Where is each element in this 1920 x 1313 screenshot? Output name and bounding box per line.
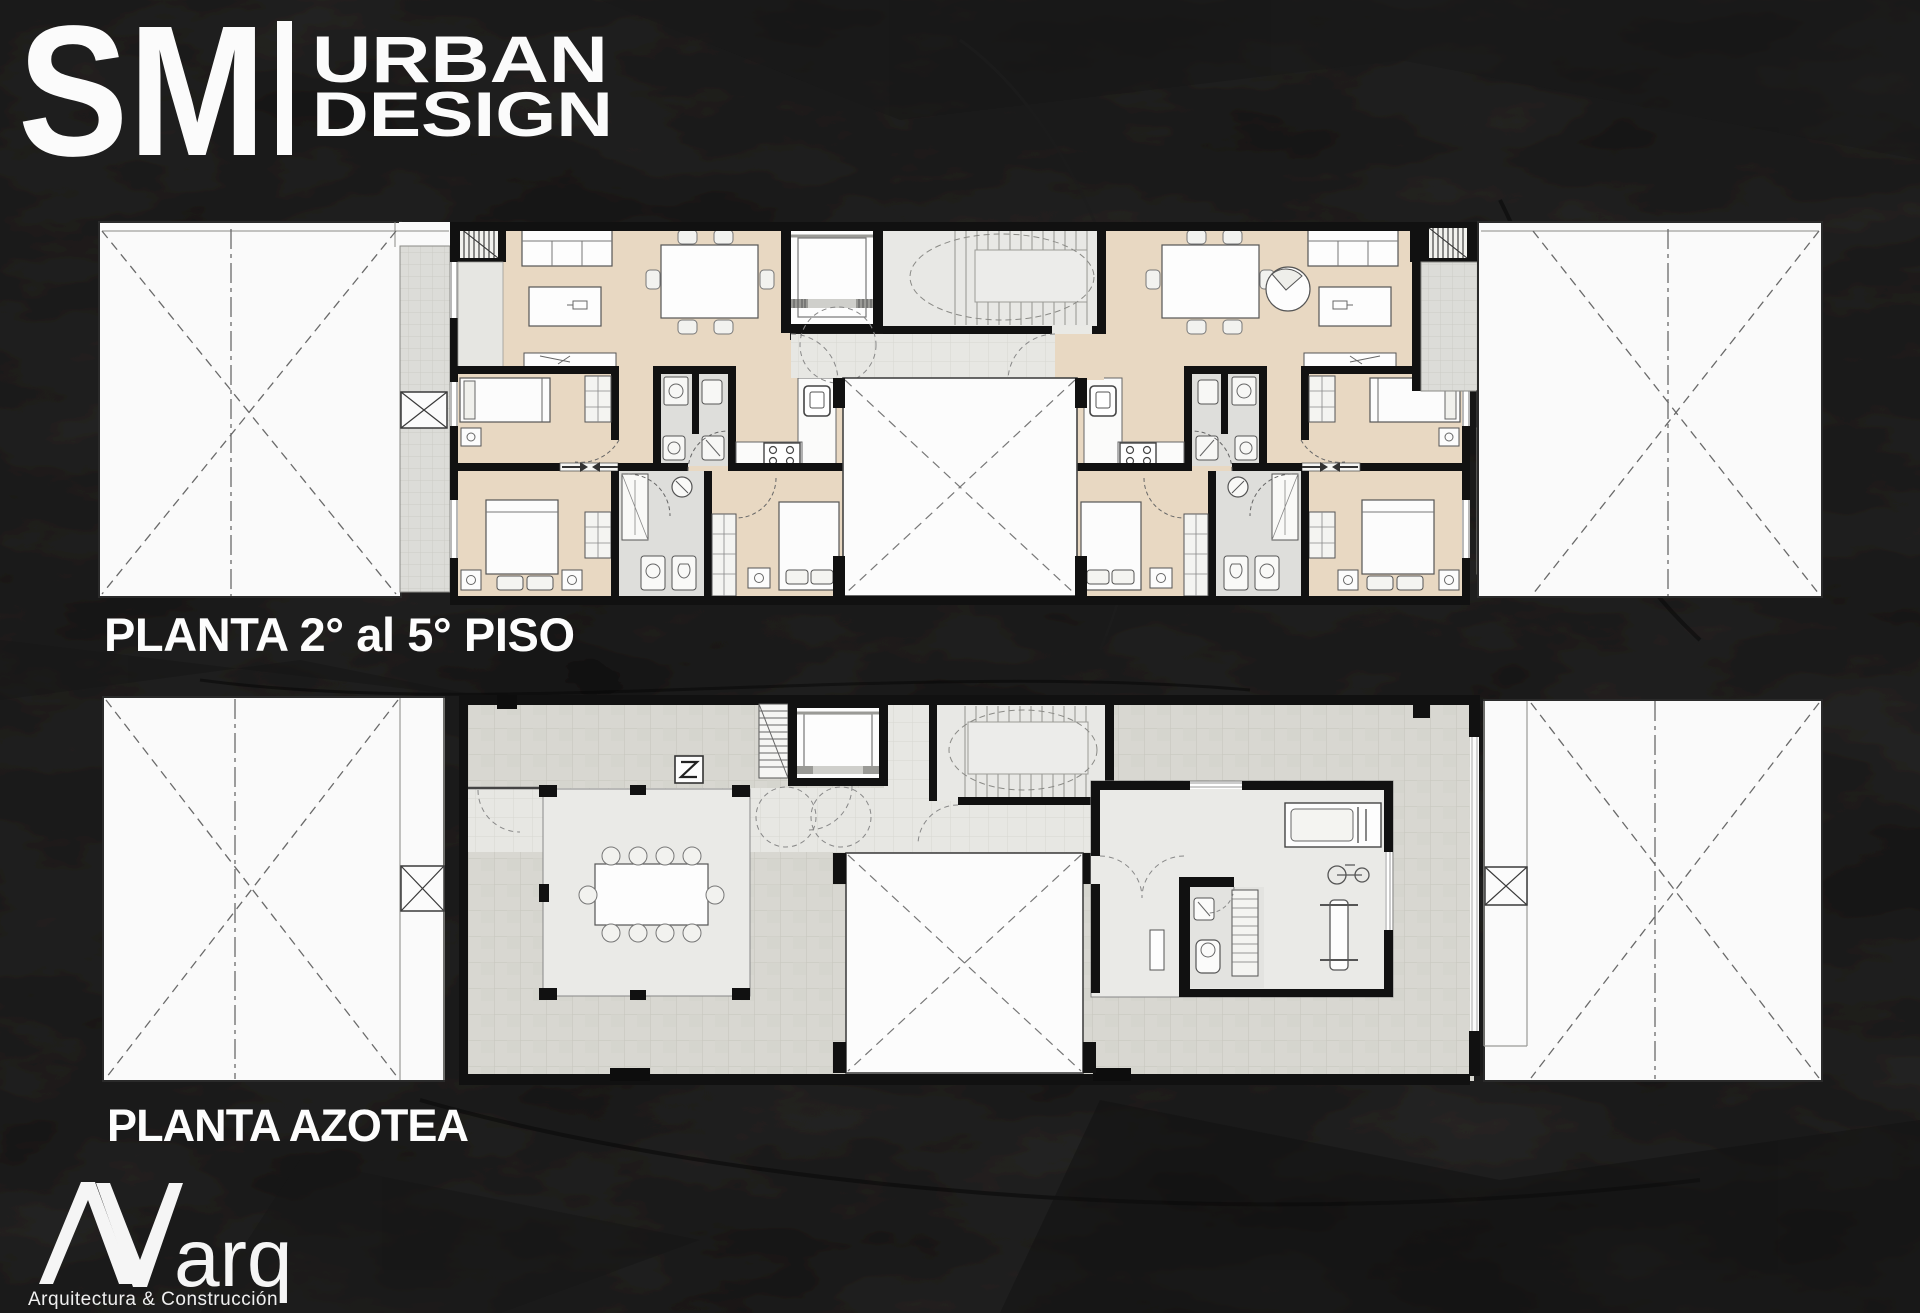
svg-text:Arquitectura & Construcción: Arquitectura & Construcción: [28, 1289, 278, 1310]
svg-text:DESIGN: DESIGN: [312, 80, 613, 150]
svg-text:PLANTA 2° al 5° PISO: PLANTA 2° al 5° PISO: [104, 608, 578, 661]
svg-text:PLANTA AZOTEA: PLANTA AZOTEA: [107, 1100, 473, 1151]
svg-text:SM: SM: [18, 0, 266, 195]
